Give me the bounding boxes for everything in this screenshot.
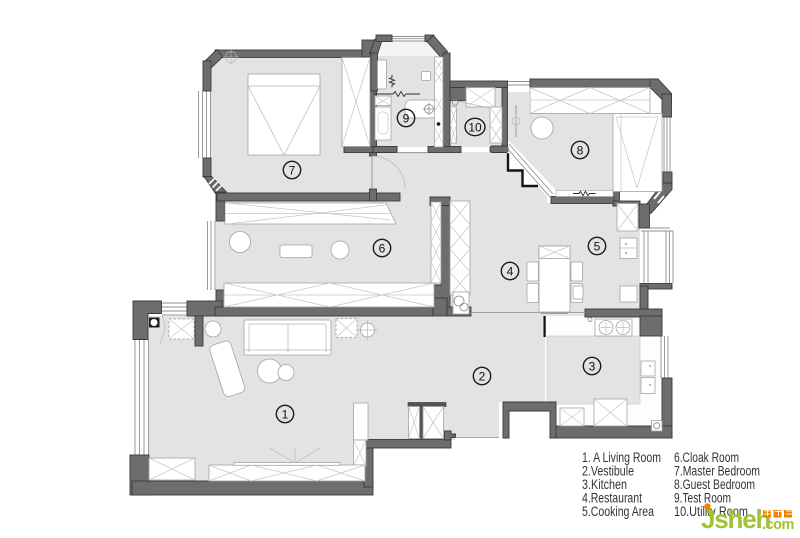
svg-text:4: 4 (507, 265, 514, 279)
svg-text:6: 6 (379, 242, 386, 256)
svg-text:8: 8 (577, 144, 584, 158)
svg-text:10: 10 (468, 121, 482, 135)
svg-text:1: 1 (282, 408, 289, 422)
svg-text:Jsheh: Jsheh (701, 504, 770, 533)
svg-text:2: 2 (479, 370, 486, 384)
svg-text:9: 9 (403, 112, 410, 126)
svg-text:3: 3 (589, 360, 596, 374)
svg-text:5.Cooking Area: 5.Cooking Area (582, 504, 654, 519)
svg-text:7: 7 (289, 164, 296, 178)
svg-text:.com: .com (762, 517, 794, 533)
svg-text:5: 5 (594, 240, 601, 254)
